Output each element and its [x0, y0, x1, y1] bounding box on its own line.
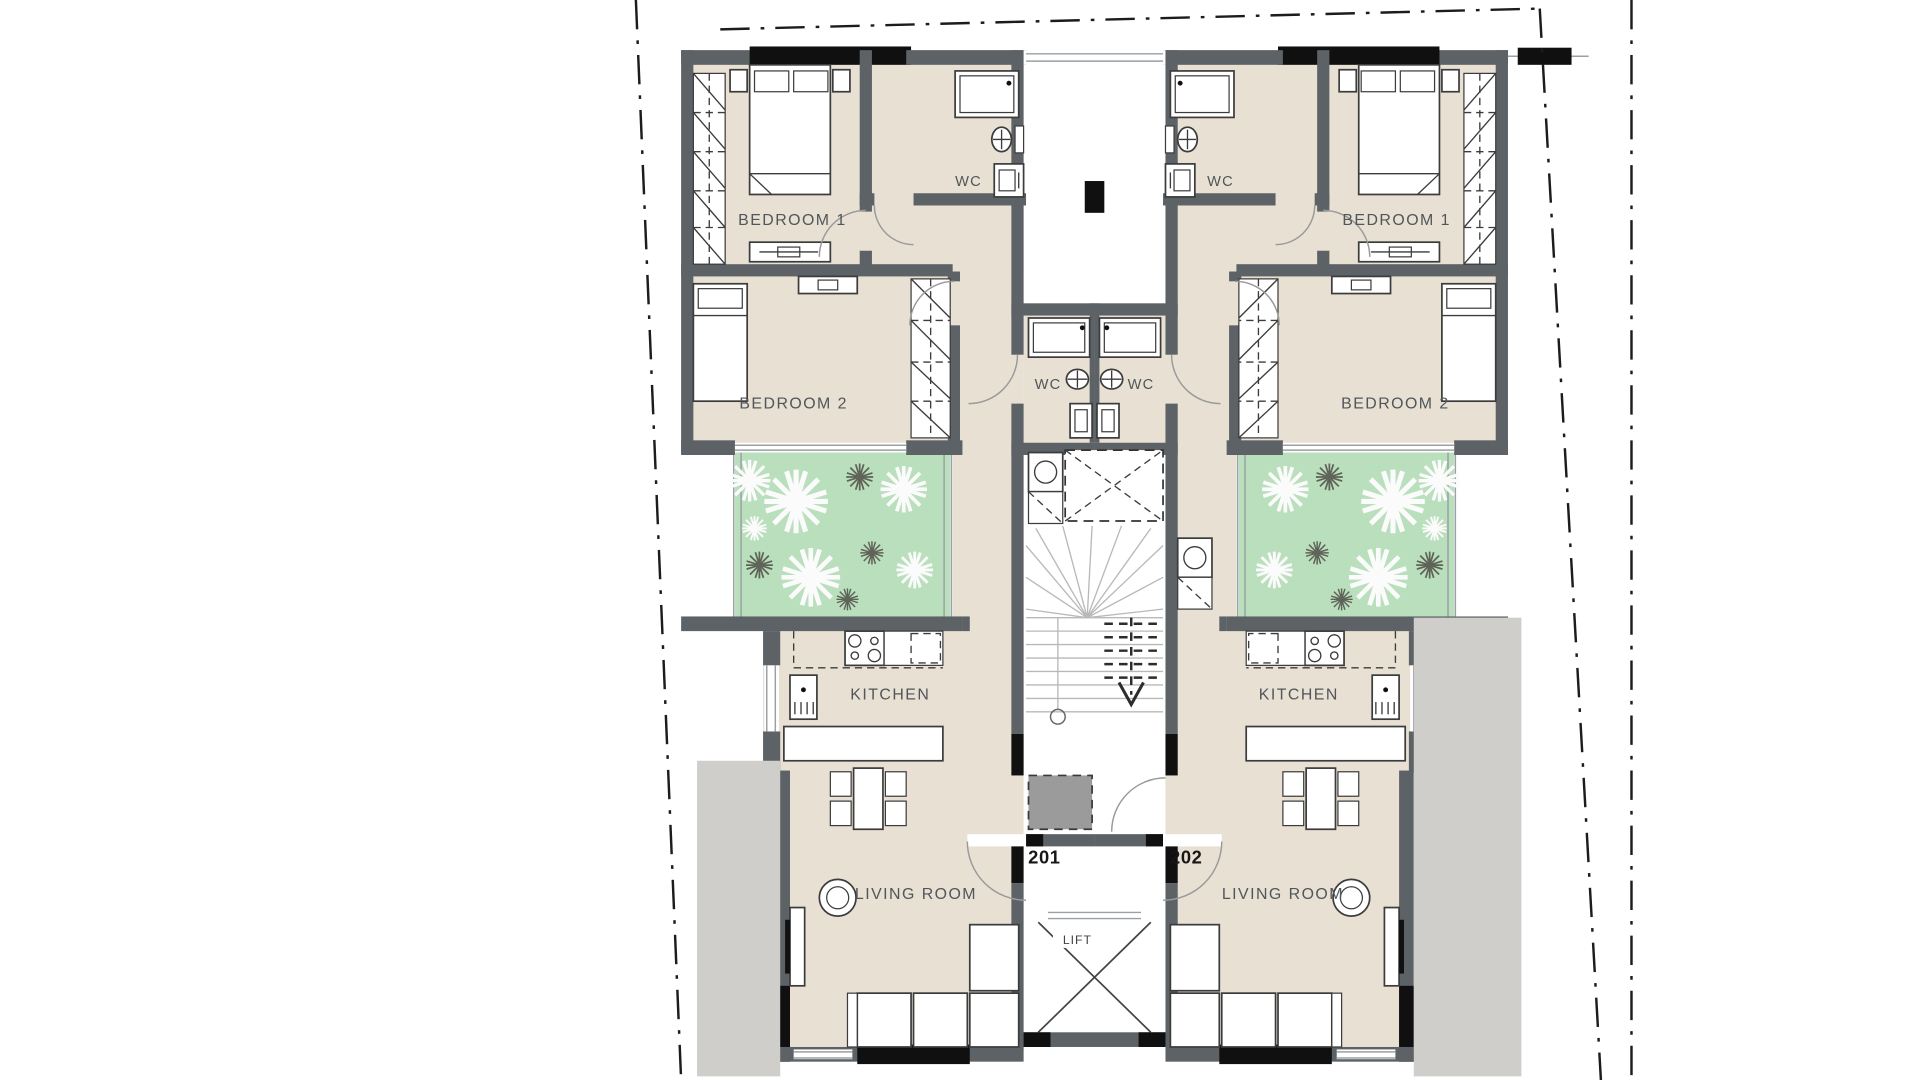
washer: [1028, 453, 1062, 524]
sink: [992, 126, 1024, 153]
table: [854, 768, 883, 829]
kitchen-label-201: KITCHEN: [850, 687, 930, 704]
void-skylight: [1065, 450, 1163, 521]
toilet: [994, 164, 1023, 197]
boundary-line-left: [636, 0, 681, 1080]
nightstand: [730, 70, 747, 92]
lift-label: LIFT: [1063, 933, 1092, 947]
adjacent-structure: [1508, 48, 1589, 65]
chair: [830, 801, 851, 825]
entry-mat: [1028, 775, 1092, 829]
wc-inner-label-202: WC: [1128, 377, 1155, 393]
shower: [955, 71, 1019, 117]
wardrobe: [693, 73, 725, 264]
duct-shaft: [1085, 181, 1105, 213]
nightstand: [833, 70, 850, 92]
dresser: [799, 276, 858, 293]
boundary-line-top: [720, 9, 1539, 30]
kitchen-label-202: KITCHEN: [1259, 687, 1339, 704]
lobby-door-arc: [1112, 778, 1166, 832]
bedroom1-label-201: BEDROOM 1: [738, 212, 847, 229]
chair: [885, 801, 906, 825]
living-room-label-201: LIVING ROOM: [855, 886, 977, 903]
armchair: [819, 879, 856, 916]
terrace-left: [697, 761, 780, 1077]
single-bed: [693, 284, 747, 401]
unit-number-201: 201: [1028, 847, 1060, 868]
living-room-label-202: LIVING ROOM: [1222, 886, 1344, 903]
toilet: [1070, 404, 1092, 438]
bedroom2-label-202: BEDROOM 2: [1341, 396, 1450, 413]
unit-number-202: 202: [1170, 847, 1202, 868]
wc-upper-label-202: WC: [1207, 174, 1234, 190]
entry-lobby: [1028, 775, 1165, 831]
chair: [830, 772, 851, 796]
bedroom1-label-202: BEDROOM 1: [1342, 212, 1451, 229]
lift-shaft: [1024, 912, 1166, 1047]
kitchen-island: [784, 727, 943, 761]
wardrobe: [911, 279, 950, 438]
bedroom2-label-201: BEDROOM 2: [739, 396, 848, 413]
floor-plan: BEDROOM 1 BEDROOM 2 WC WC KITCHEN LIVING…: [0, 0, 1920, 1080]
fridge: [790, 675, 817, 719]
staircase: [1026, 526, 1163, 724]
tv: [785, 920, 790, 974]
window-pier-top: [750, 46, 911, 64]
wc-upper-label-201: WC: [955, 174, 982, 190]
stove: [845, 631, 884, 665]
sink: [1066, 369, 1088, 389]
chair: [885, 772, 906, 796]
boundary-line-right: [1540, 9, 1601, 1080]
shower: [1028, 318, 1089, 357]
washer: [1178, 538, 1212, 609]
dresser: [750, 242, 831, 262]
terrace-right: [1414, 618, 1522, 1077]
garden-planter: [729, 448, 952, 619]
wc-inner-label-201: WC: [1035, 377, 1062, 393]
